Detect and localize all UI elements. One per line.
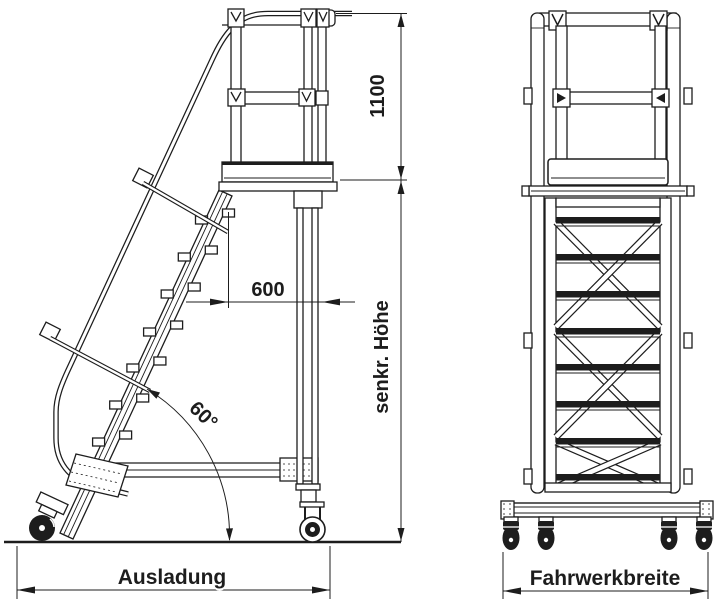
front-view [501, 11, 713, 550]
dimension-vertical-height: senkr. Höhe [371, 181, 405, 541]
mid-rail-front [553, 89, 669, 107]
axle-beam [501, 501, 713, 519]
dim-label-fahrwerkbreite: Fahrwerkbreite [530, 567, 681, 590]
castor [538, 517, 555, 550]
dimension-guardrail-height: 1100 [367, 14, 405, 179]
mid-rail-side [228, 89, 328, 106]
dim-label-1100: 1100 [367, 74, 389, 117]
dimension-outreach: Ausladung [17, 546, 330, 599]
front-view-castors [503, 517, 713, 550]
dimension-chassis-width: Fahrwerkbreite [503, 552, 708, 599]
side-view [4, 9, 401, 542]
gusset-plate-front [66, 454, 128, 497]
platform-side [219, 162, 337, 208]
cross-member [66, 454, 318, 497]
treads-front [545, 217, 671, 492]
dim-label-600: 600 [251, 279, 284, 301]
castor [503, 517, 520, 550]
dim-label-ausladung: Ausladung [118, 566, 227, 589]
platform-front [522, 159, 694, 196]
castor [696, 517, 713, 550]
technical-drawing: 1100 senkr. Höhe 600 60° [0, 0, 718, 600]
knee-braces [40, 168, 228, 391]
dim-label-60deg: 60° [185, 397, 222, 434]
castor [661, 517, 678, 550]
dim-label-senkr-hoehe: senkr. Höhe [371, 300, 393, 413]
rear-castor [300, 502, 325, 542]
drawing-canvas: 1100 senkr. Höhe 600 60° [0, 0, 718, 600]
